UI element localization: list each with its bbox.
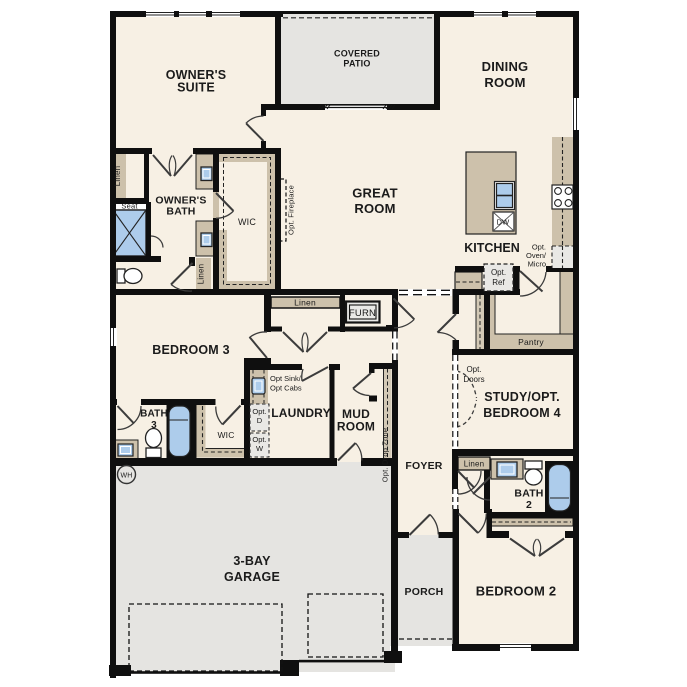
svg-text:FURN: FURN: [349, 308, 376, 319]
svg-text:Seat: Seat: [121, 202, 138, 211]
svg-text:Pantry: Pantry: [518, 337, 544, 347]
svg-text:WIC: WIC: [217, 430, 234, 440]
svg-text:PATIO: PATIO: [343, 59, 370, 69]
svg-text:W: W: [256, 444, 264, 453]
svg-text:Opt. Drop Zone: Opt. Drop Zone: [381, 428, 390, 483]
svg-text:BATH: BATH: [166, 206, 195, 218]
svg-text:2: 2: [526, 499, 532, 511]
svg-text:Linen: Linen: [464, 460, 485, 469]
svg-text:Ref: Ref: [492, 278, 505, 287]
svg-text:BEDROOM 4: BEDROOM 4: [483, 406, 561, 420]
svg-text:COVERED: COVERED: [334, 49, 380, 59]
svg-text:ROOM: ROOM: [337, 420, 375, 434]
svg-text:DW: DW: [497, 218, 511, 227]
svg-text:GARAGE: GARAGE: [224, 570, 280, 584]
svg-text:Opt.: Opt.: [466, 365, 481, 374]
svg-text:PORCH: PORCH: [405, 586, 444, 598]
svg-text:WH: WH: [120, 473, 132, 480]
svg-text:Linen: Linen: [197, 264, 206, 285]
svg-text:3-BAY: 3-BAY: [233, 554, 271, 568]
svg-text:FOYER: FOYER: [405, 460, 442, 472]
svg-text:Linen: Linen: [113, 166, 122, 187]
svg-text:KITCHEN: KITCHEN: [464, 241, 520, 255]
svg-text:BATH: BATH: [140, 409, 168, 420]
svg-text:DINING: DINING: [482, 59, 529, 74]
svg-text:LAUNDRY: LAUNDRY: [271, 406, 331, 420]
svg-text:Doors: Doors: [463, 375, 484, 384]
svg-text:ROOM: ROOM: [354, 201, 395, 216]
svg-text:D: D: [257, 416, 263, 425]
svg-text:Linen: Linen: [294, 298, 316, 308]
svg-text:BATH: BATH: [514, 488, 543, 500]
svg-text:Opt Cabs: Opt Cabs: [270, 384, 302, 393]
svg-text:SUITE: SUITE: [177, 81, 215, 95]
svg-text:Micro: Micro: [528, 260, 546, 269]
svg-text:GREAT: GREAT: [352, 186, 398, 201]
svg-text:Opt.: Opt.: [491, 268, 506, 277]
svg-text:BEDROOM 2: BEDROOM 2: [476, 584, 557, 599]
svg-text:Opt Sink/: Opt Sink/: [270, 374, 302, 383]
svg-text:WIC: WIC: [238, 217, 256, 227]
svg-text:Opt.: Opt.: [252, 407, 266, 416]
svg-text:3: 3: [151, 420, 157, 431]
svg-text:STUDY/OPT.: STUDY/OPT.: [484, 390, 560, 404]
svg-text:Opt. Fireplace: Opt. Fireplace: [287, 185, 296, 235]
svg-text:ROOM: ROOM: [484, 75, 525, 90]
svg-text:BEDROOM 3: BEDROOM 3: [152, 343, 230, 357]
svg-text:Opt.: Opt.: [252, 435, 266, 444]
